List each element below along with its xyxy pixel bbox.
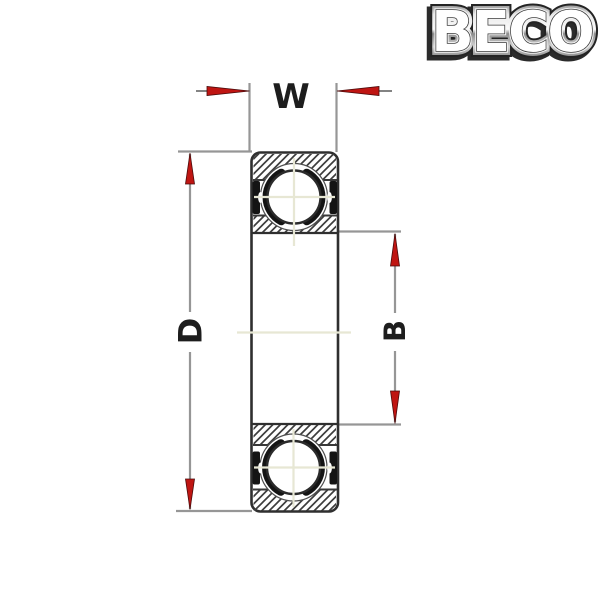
bearing-diagram: W D B (0, 0, 600, 600)
dim-label-w: W (272, 77, 310, 117)
dim-label-d: D (172, 318, 210, 345)
arrow-w-left (207, 87, 250, 96)
bearing-diagram-page: W D B (0, 0, 600, 600)
arrow-d-bottom (186, 479, 195, 510)
arrow-w-right (337, 87, 379, 96)
dim-label-b: B (378, 320, 412, 342)
dimension-bore: B (339, 232, 412, 425)
arrow-b-top (391, 234, 400, 267)
bearing-cross-section (237, 153, 351, 512)
dimension-outer-diameter: D (172, 152, 252, 512)
arrow-b-bottom (391, 391, 400, 424)
dimension-width: W (196, 77, 392, 152)
logo-inner-line-layer: BECO (431, 0, 593, 65)
arrow-d-top (186, 153, 195, 184)
bottom-section (252, 424, 339, 511)
top-section (252, 154, 339, 246)
logo-beco: BECO BECO BECO BECO BECO (428, 0, 593, 68)
